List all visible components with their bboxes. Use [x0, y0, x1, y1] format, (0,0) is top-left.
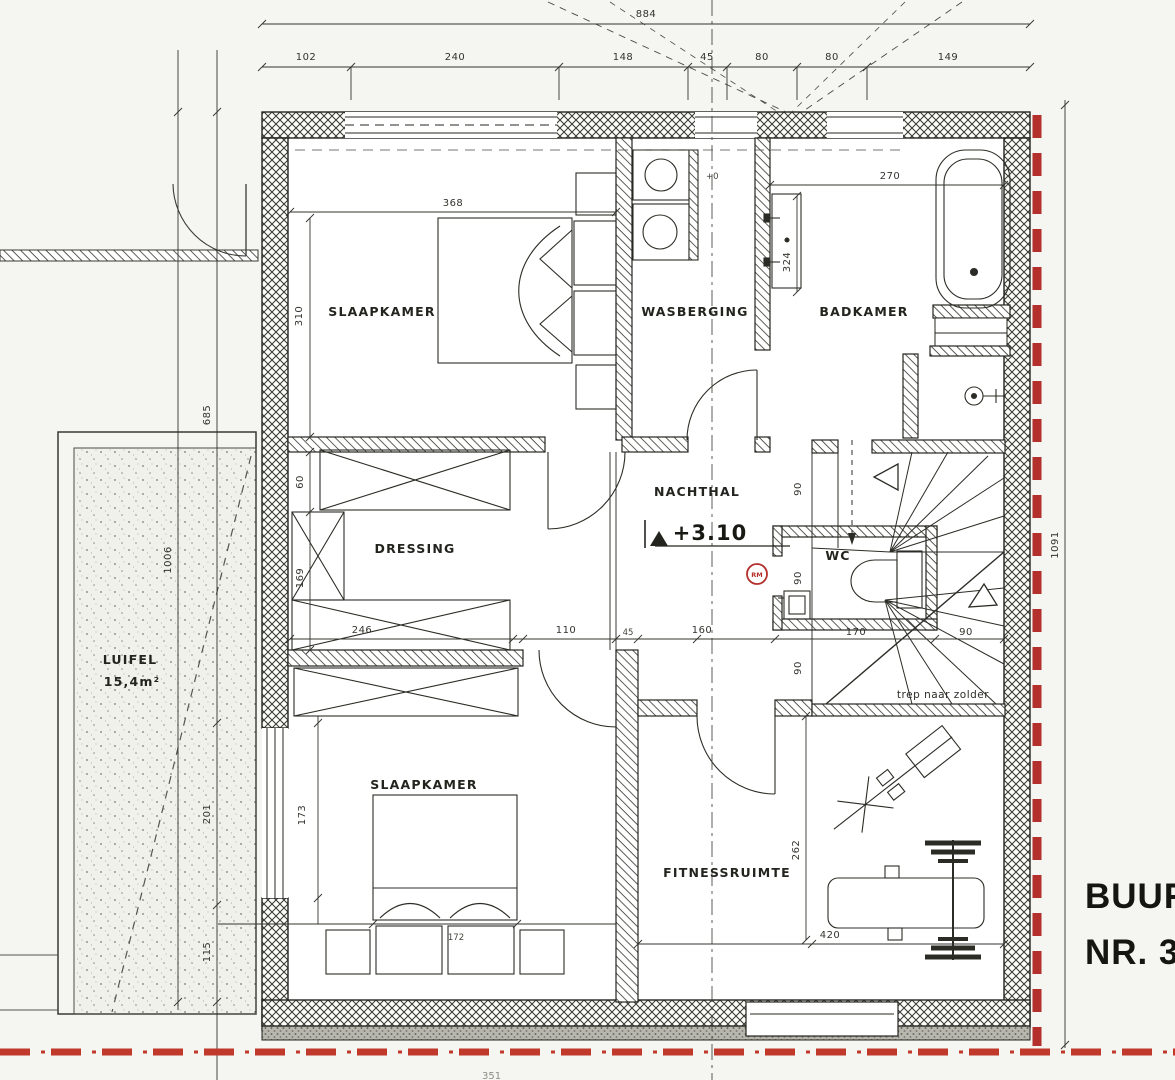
dim: 90 — [793, 571, 804, 585]
smoke-detector-label: RM — [751, 571, 762, 579]
dim: 80 — [825, 52, 839, 63]
partial-dimension-bottom: 351 — [482, 1071, 501, 1080]
dim: 60 — [295, 475, 306, 489]
neighbor-label-line1: BUUR — [1085, 877, 1175, 916]
stairs-note: trep naar zolder — [897, 689, 989, 701]
dim: 1006 — [163, 546, 174, 573]
wall-h1-mid — [622, 437, 688, 452]
dim-top-total: 884 — [636, 9, 657, 20]
dim: 246 — [352, 625, 373, 636]
dim: 310 — [294, 306, 305, 327]
floorplan-drawing: RM SLAAPKAMER WASBERGING BADKAMER DRESSI… — [0, 0, 1175, 1080]
dim: 80 — [755, 52, 769, 63]
dim: 420 — [820, 930, 841, 941]
dim: 270 — [880, 171, 901, 182]
dim: 201 — [202, 804, 213, 825]
wall-bath-shelf-top — [933, 305, 1010, 318]
room-label-wc: WC — [825, 548, 850, 563]
dim: 685 — [202, 405, 213, 426]
dim: 102 — [296, 52, 317, 63]
dim: 368 — [443, 198, 464, 209]
room-label-badkamer: BADKAMER — [819, 304, 908, 319]
wall-shower — [903, 354, 918, 438]
window-west-sliding-door — [262, 728, 288, 898]
wall-stairs-top — [872, 440, 1005, 453]
dim: 160 — [692, 625, 713, 636]
window-north-3 — [827, 112, 903, 138]
room-label-nachthal: NACHTHAL — [654, 484, 740, 499]
dim: 170 — [846, 627, 867, 638]
room-label-dressing: DRESSING — [375, 541, 456, 556]
room-label-slaapkamer-bottom: SLAAPKAMER — [370, 777, 477, 792]
dim: 149 — [938, 52, 959, 63]
wall-south — [262, 1000, 1030, 1026]
dim: 115 — [202, 942, 213, 963]
dim: 90 — [793, 482, 804, 496]
level-zero-mark: +0 — [706, 172, 719, 182]
wall-bath-shelf-bottom — [930, 346, 1010, 356]
dim: 172 — [448, 933, 464, 943]
dim: 324 — [782, 252, 793, 273]
wall-nachthal-fitness-e — [775, 700, 812, 716]
wall-west-upper — [262, 138, 288, 728]
door-south-sill — [746, 1002, 898, 1036]
level-annotation: +3.10 — [673, 521, 747, 545]
neighbor-label-line2: NR. 32 — [1085, 933, 1175, 972]
wall-dressing-south — [288, 650, 523, 666]
dim: 45 — [623, 628, 634, 638]
dim: 169 — [295, 568, 306, 589]
room-label-fitnessruimte: FITNESSRUIMTE — [663, 865, 791, 880]
luifel-area-label: 15,4m² — [104, 674, 161, 689]
room-label-slaapkamer-top: SLAAPKAMER — [328, 304, 435, 319]
window-north-2 — [695, 112, 757, 138]
wall-nachthal-fitness-w — [638, 700, 697, 716]
dim: 1091 — [1050, 531, 1061, 558]
floor-area — [262, 112, 1030, 1028]
dim: 148 — [613, 52, 634, 63]
wall-wasberging-badkamer — [755, 138, 770, 350]
dim: 90 — [959, 627, 973, 638]
dim: 173 — [297, 805, 308, 826]
dim: 110 — [556, 625, 577, 636]
wall-east — [1004, 138, 1030, 1028]
wall-slaapkamer-fitness — [616, 650, 638, 1002]
dim: 45 — [700, 52, 714, 63]
dim: 240 — [445, 52, 466, 63]
room-label-luifel: LUIFEL — [103, 652, 158, 667]
dim: 90 — [793, 661, 804, 675]
dim: 262 — [791, 840, 802, 861]
room-label-wasberging: WASBERGING — [641, 304, 748, 319]
floorplan-document: RM SLAAPKAMER WASBERGING BADKAMER DRESSI… — [0, 0, 1175, 1080]
window-north-1 — [345, 112, 557, 138]
wall-slaapkamer-wasberging — [616, 138, 632, 440]
wall-stairs-bottom — [812, 704, 1005, 716]
luifel-canopy — [58, 432, 256, 1014]
